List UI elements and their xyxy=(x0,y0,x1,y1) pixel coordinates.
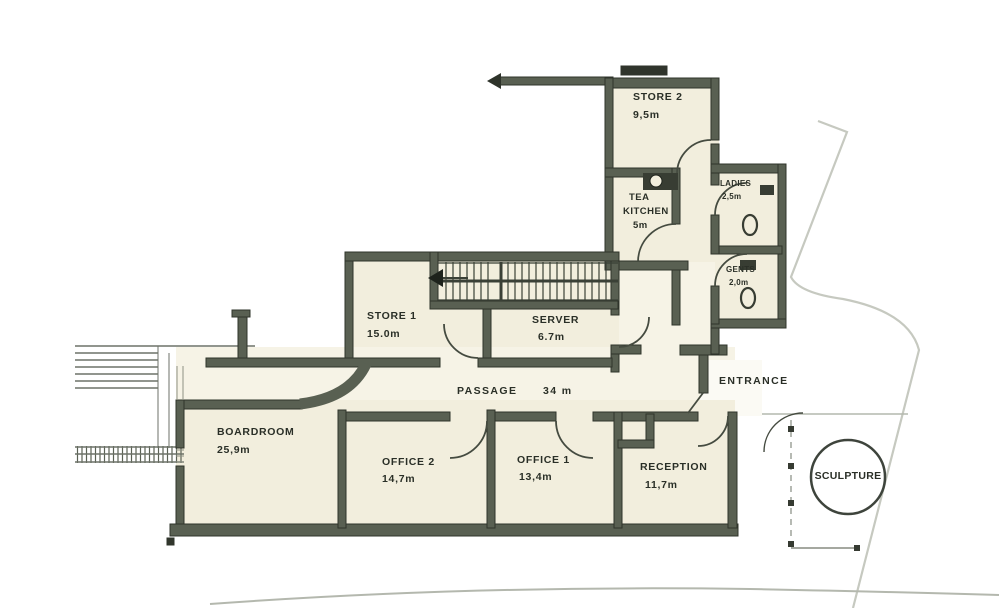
office2-area: 14,7m xyxy=(382,474,415,485)
gents-area: 2,0m xyxy=(729,279,748,287)
passage-length: 34 m xyxy=(543,386,573,397)
reception-label: RECEPTION xyxy=(640,462,708,473)
server-area: 6.7m xyxy=(538,332,565,343)
office1-label: OFFICE 1 xyxy=(517,455,570,466)
office1-area: 13,4m xyxy=(519,472,552,483)
boardroom-area: 25,9m xyxy=(217,445,250,456)
ladies-basin xyxy=(760,185,774,195)
office2-label: OFFICE 2 xyxy=(382,457,435,468)
gents-label: GENTS xyxy=(726,266,755,274)
tea-kitchen-label-line2: KITCHEN xyxy=(623,207,669,217)
floor-plan-page: STORE 2 9,5m TEA KITCHEN 5m LADIES 2,5m … xyxy=(0,0,1000,608)
server-label: SERVER xyxy=(532,315,579,326)
plan-graphics xyxy=(0,0,1000,608)
tea-kitchen-area: 5m xyxy=(633,221,648,231)
store2-label: STORE 2 xyxy=(633,92,683,103)
gents-toilet xyxy=(741,288,755,308)
store1-label: STORE 1 xyxy=(367,311,417,322)
parapet-arrow-icon xyxy=(487,73,501,89)
ladies-toilet xyxy=(743,215,757,235)
reception-area: 11,7m xyxy=(645,480,678,491)
passage-label: PASSAGE xyxy=(457,386,517,397)
store1-area: 15.0m xyxy=(367,329,400,340)
ladies-area: 2,5m xyxy=(722,193,741,201)
tea-kitchen-label-line1: TEA xyxy=(629,193,650,203)
floor-plan: STORE 2 9,5m TEA KITCHEN 5m LADIES 2,5m … xyxy=(0,0,1000,608)
ladies-label: LADIES xyxy=(720,180,751,188)
sculpture-label: SCULPTURE xyxy=(798,471,898,482)
boardroom-label: BOARDROOM xyxy=(217,427,294,438)
store2-area: 9,5m xyxy=(633,110,660,121)
entrance-label: ENTRANCE xyxy=(719,376,789,387)
